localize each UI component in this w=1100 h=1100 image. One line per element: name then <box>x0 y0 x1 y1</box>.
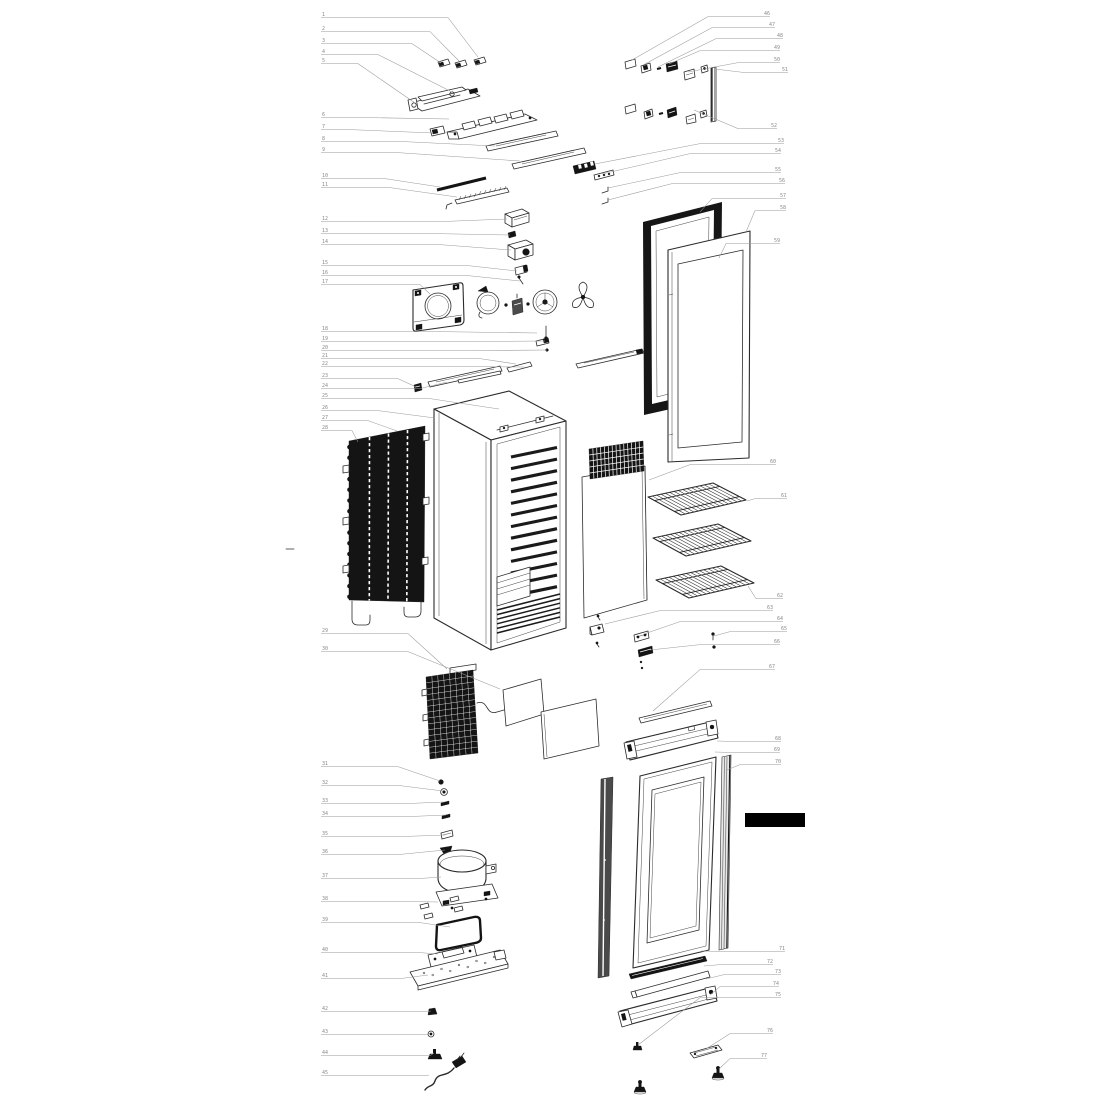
part-number: 73 <box>775 969 781 975</box>
glass-door-frame-upper <box>668 231 750 462</box>
part-number: 15 <box>322 260 328 266</box>
part-number: 7 <box>322 124 325 130</box>
part-number: 6 <box>322 112 325 118</box>
part-number: 1 <box>322 12 325 18</box>
part-number: 60 <box>770 459 776 465</box>
callout-46: 46 <box>632 11 770 60</box>
callout-53: 53 <box>595 138 784 164</box>
part-number: 67 <box>769 664 775 670</box>
callout-51: 51 <box>715 67 788 73</box>
callout-3: 3 <box>321 38 441 63</box>
top-rail-header <box>624 720 718 760</box>
part-number: 46 <box>764 11 770 17</box>
spacer-dot-2 <box>527 303 530 306</box>
stud-2 <box>442 814 450 819</box>
side-trim-left <box>598 777 613 978</box>
callout-5: 5 <box>321 58 415 103</box>
wire-shelf-2 <box>653 524 751 556</box>
callout-39: 39 <box>321 917 450 927</box>
hinge-bracket-1 <box>590 615 604 647</box>
part-number: 5 <box>322 58 325 64</box>
compressor <box>436 850 498 909</box>
exploded-parts-diagram: 1234567891011121314151617181920212223242… <box>0 0 1100 1100</box>
callout-65: 65 <box>714 626 787 636</box>
foot-small <box>428 1008 437 1015</box>
part-number: 32 <box>322 780 328 786</box>
part-number: 77 <box>761 1053 767 1059</box>
fan-bracket-ring-2 <box>533 290 557 314</box>
part-number: 71 <box>779 946 785 952</box>
part-number: 24 <box>322 383 328 389</box>
evaporator-pipes <box>352 601 421 625</box>
part-number: 65 <box>781 626 787 632</box>
hinge-hardware-row-2 <box>625 104 707 124</box>
callout-67: 67 <box>653 664 775 711</box>
ballast-box <box>505 209 529 227</box>
callout-1: 1 <box>321 12 478 57</box>
cover-caps <box>438 57 486 68</box>
callout-72: 72 <box>704 959 773 966</box>
wire-shelf-1 <box>648 483 746 515</box>
part-number: 11 <box>322 182 328 188</box>
callout-31: 31 <box>321 761 440 781</box>
slide-rail-assembly <box>408 87 480 111</box>
callout-38: 38 <box>321 896 438 902</box>
part-number: 54 <box>775 148 781 154</box>
stud-1 <box>441 801 449 806</box>
callout-33: 33 <box>321 798 444 804</box>
part-number: 33 <box>322 798 328 804</box>
part-number: 16 <box>322 270 328 276</box>
fan-motor <box>512 294 523 315</box>
callout-68: 68 <box>717 736 781 742</box>
callout-63: 63 <box>605 605 773 624</box>
callout-43: 43 <box>321 1029 430 1035</box>
top-rail-slim <box>639 701 712 723</box>
pcb-strip <box>594 170 614 180</box>
part-number: 20 <box>322 345 328 351</box>
wire-clips <box>602 187 608 204</box>
part-number: 75 <box>775 992 781 998</box>
part-number: 52 <box>771 123 777 129</box>
callout-73: 73 <box>706 969 781 979</box>
callout-64: 64 <box>644 616 783 634</box>
hinge-hardware-row-1 <box>625 59 708 80</box>
part-number: 64 <box>777 616 783 622</box>
callout-26: 26 <box>321 405 435 418</box>
cabinet-body <box>434 391 566 650</box>
callout-19: 19 <box>321 336 545 342</box>
part-number: 22 <box>322 361 328 367</box>
part-number: 55 <box>775 167 781 173</box>
clip-block <box>414 383 422 392</box>
part-number: 48 <box>777 33 783 39</box>
callout-32: 32 <box>321 780 443 791</box>
diagram-svg: 1234567891011121314151617181920212223242… <box>0 0 1100 1100</box>
callout-4: 4 <box>321 49 452 92</box>
part-number: 30 <box>322 646 328 652</box>
callout-69: 69 <box>715 747 780 753</box>
leveling-foot-1 <box>428 1049 442 1059</box>
callout-61: 61 <box>747 493 787 501</box>
part-number: 10 <box>322 173 328 179</box>
part-number: 43 <box>322 1029 328 1035</box>
hinge-bracket-2 <box>634 631 649 642</box>
hinge-dark-part <box>638 646 653 669</box>
part-number: 37 <box>322 873 328 879</box>
glass-door-lower <box>633 757 716 968</box>
callout-56: 56 <box>608 178 785 200</box>
display-module <box>573 161 596 174</box>
led-strip <box>437 178 486 190</box>
part-number: 68 <box>775 736 781 742</box>
hinge-screws-right <box>712 633 716 649</box>
condenser-pipe <box>477 702 504 712</box>
mounting-clip-part <box>441 830 453 839</box>
callout-58: 58 <box>746 205 786 232</box>
trim-strip-upper-1 <box>486 131 558 151</box>
fan-blade <box>572 282 593 308</box>
callout-6: 6 <box>321 112 449 119</box>
callout-40: 40 <box>321 947 438 954</box>
part-number: 12 <box>322 216 328 222</box>
part-number: 44 <box>322 1050 328 1056</box>
part-number: 76 <box>767 1028 773 1034</box>
part-number: 26 <box>322 405 328 411</box>
part-number: 47 <box>769 22 775 28</box>
part-number: 49 <box>774 45 780 51</box>
part-number: 51 <box>782 67 788 73</box>
black-handle-bar <box>745 813 805 827</box>
leveling-foot-3 <box>634 1080 646 1094</box>
grommet <box>439 780 444 785</box>
part-number: 38 <box>322 896 328 902</box>
part-number: 36 <box>322 849 328 855</box>
callout-74: 74 <box>710 981 779 995</box>
back-duct-panel <box>582 441 647 618</box>
callout-77: 77 <box>719 1053 767 1069</box>
callout-16: 16 <box>321 270 520 281</box>
callout-27: 27 <box>321 415 397 431</box>
callout-8: 8 <box>321 136 495 146</box>
part-number: 59 <box>774 238 780 244</box>
part-number: 9 <box>322 147 325 153</box>
part-number: 8 <box>322 136 325 142</box>
part-number: 53 <box>778 138 784 144</box>
part-number: 2 <box>322 26 325 32</box>
part-number: 56 <box>779 178 785 184</box>
evaporator-coil <box>343 426 429 602</box>
callout-10: 10 <box>321 173 440 187</box>
cover-panel-2 <box>541 699 599 759</box>
spacer-dot-1 <box>505 304 508 307</box>
callout-34: 34 <box>321 811 446 817</box>
part-number: 40 <box>322 947 328 953</box>
callout-44: 44 <box>321 1050 434 1056</box>
side-trim-right <box>719 755 731 950</box>
callout-62: 62 <box>748 586 783 599</box>
part-number: 41 <box>322 973 328 979</box>
temp-sensor <box>536 326 549 351</box>
callout-71: 71 <box>701 946 785 952</box>
part-number: 72 <box>767 959 773 965</box>
callout-7: 7 <box>321 124 433 133</box>
part-number: 50 <box>774 57 780 63</box>
part-number: 35 <box>322 831 328 837</box>
part-number: 42 <box>322 1006 328 1012</box>
part-number: 57 <box>780 193 786 199</box>
callout-42: 42 <box>321 1006 431 1012</box>
callout-23: 23 <box>321 373 416 387</box>
part-number: 14 <box>322 239 328 245</box>
wire-shelf-3 <box>656 566 754 598</box>
callout-49: 49 <box>669 45 780 64</box>
part-number: 3 <box>322 38 325 44</box>
part-number: 18 <box>322 326 328 332</box>
condenser-coil <box>422 664 478 759</box>
part-number: 74 <box>773 981 779 987</box>
part-number: 39 <box>322 917 328 923</box>
part-number: 69 <box>774 747 780 753</box>
part-number: 23 <box>322 373 328 379</box>
part-number: 21 <box>322 353 328 359</box>
connector-small <box>508 231 516 238</box>
trim-strip-mid-d <box>576 349 644 368</box>
callout-28: 28 <box>321 425 358 442</box>
callout-54: 54 <box>602 148 781 174</box>
control-board-tray <box>430 110 537 139</box>
part-number: 28 <box>322 425 328 431</box>
part-number: 66 <box>774 639 780 645</box>
lock-bracket <box>690 1045 722 1058</box>
part-number: 17 <box>322 279 328 285</box>
part-number: 62 <box>777 593 783 599</box>
callout-29: 29 <box>321 628 447 669</box>
lamp-strip <box>446 186 509 209</box>
callout-36: 36 <box>321 849 445 855</box>
part-number: 27 <box>322 415 328 421</box>
callout-35: 35 <box>321 831 445 837</box>
callout-14: 14 <box>321 239 511 250</box>
part-number: 19 <box>322 336 328 342</box>
washer-ring <box>441 789 448 796</box>
part-number: 63 <box>767 605 773 611</box>
cover-panel-1 <box>503 679 544 726</box>
starter-connector <box>515 265 528 275</box>
callout-20: 20 <box>321 345 547 351</box>
part-number: 25 <box>322 393 328 399</box>
part-number: 58 <box>780 205 786 211</box>
part-number: 31 <box>322 761 328 767</box>
callout-13: 13 <box>321 228 510 235</box>
callout-21: 21 <box>321 353 516 364</box>
callout-11: 11 <box>321 182 457 197</box>
screw-small-top <box>518 276 523 284</box>
fan-shroud <box>413 283 464 331</box>
part-number: 13 <box>322 228 328 234</box>
part-number: 29 <box>322 628 328 634</box>
callout-37: 37 <box>321 873 441 879</box>
callout-47: 47 <box>645 22 775 64</box>
part-number: 4 <box>322 49 325 55</box>
fan-bracket-ring-1 <box>477 286 499 318</box>
relay-box <box>508 240 533 260</box>
callout-22: 22 <box>321 361 524 367</box>
callout-70: 70 <box>727 759 781 770</box>
callout-55: 55 <box>608 167 781 188</box>
callout-12: 12 <box>321 216 507 222</box>
door-pivot-strip <box>711 67 716 122</box>
callout-15: 15 <box>321 260 517 271</box>
callout-45: 45 <box>321 1070 429 1076</box>
part-number: 45 <box>322 1070 328 1076</box>
part-number: 70 <box>775 759 781 765</box>
part-number: 34 <box>322 811 328 817</box>
leveling-foot-2 <box>712 1066 724 1080</box>
part-number: 61 <box>781 493 787 499</box>
